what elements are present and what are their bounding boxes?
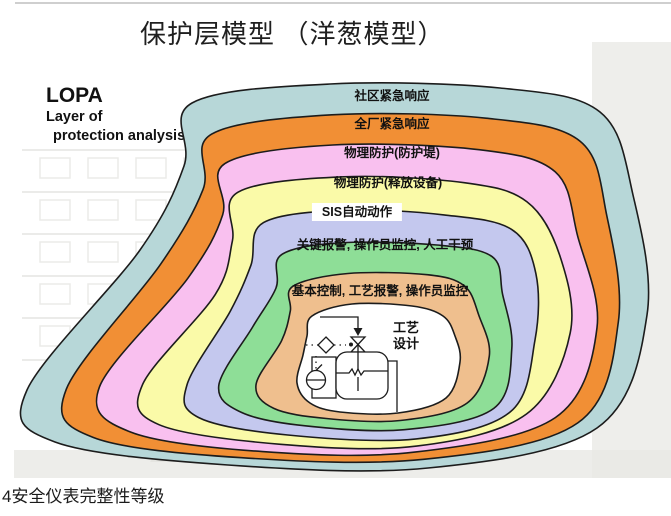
process-design-line1: 工艺	[393, 320, 419, 336]
process-design-line2: 设计	[393, 336, 419, 352]
layer-label-basic-control: 基本控制, 工艺报警, 操作员监控	[292, 284, 468, 298]
layer-label-critical-alarms: 关键报警, 操作员监控, 人工干预	[297, 238, 473, 252]
vessel-icon	[336, 352, 388, 399]
valve-actuator-icon	[349, 343, 353, 347]
layer-label-sis: SIS自动动作	[312, 203, 402, 221]
layer-label-community-response: 社区紧急响应	[354, 89, 429, 103]
onion-diagram	[0, 0, 671, 516]
layer-label-plant-response: 全厂紧急响应	[354, 117, 429, 131]
layer-label-relief-devices: 物理防护(释放设备)	[334, 176, 442, 190]
slide: 保护层模型 （洋葱模型） LOPA Layer of protection an…	[0, 0, 671, 516]
layer-label-dike: 物理防护(防护堤)	[344, 146, 440, 160]
process-design-label: 工艺 设计	[393, 320, 419, 352]
bottom-caption: 4安全仪表完整性等级	[2, 482, 164, 507]
